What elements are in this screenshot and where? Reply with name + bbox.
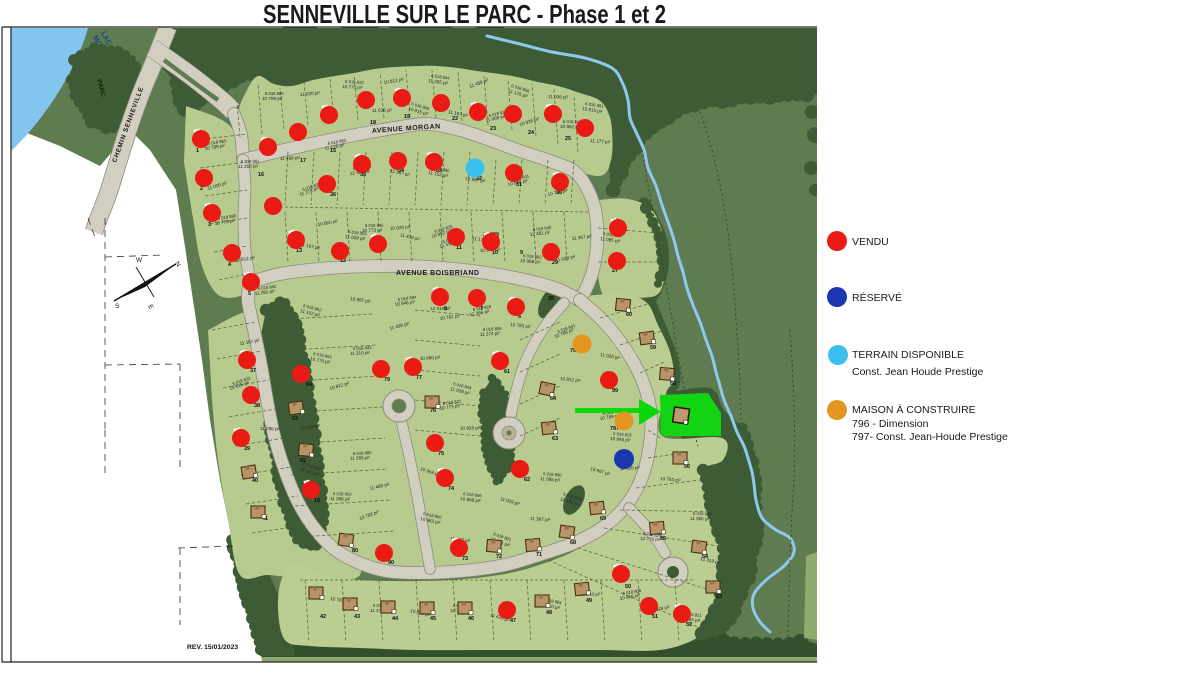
svg-text:6 018 802: 6 018 802 — [333, 491, 352, 497]
svg-text:47: 47 — [510, 618, 516, 624]
svg-text:11 265 pi²: 11 265 pi² — [238, 164, 259, 169]
svg-text:6 018 822: 6 018 822 — [345, 79, 365, 85]
svg-text:5: 5 — [248, 291, 251, 297]
svg-text:24: 24 — [528, 130, 535, 136]
svg-text:RÉSERVÉ: RÉSERVÉ — [852, 291, 902, 304]
svg-text:63: 63 — [552, 436, 558, 442]
svg-text:42: 42 — [320, 614, 326, 620]
svg-text:46: 46 — [468, 616, 474, 622]
svg-text:6 018 843: 6 018 843 — [693, 511, 712, 516]
svg-text:71: 71 — [536, 552, 542, 558]
svg-text:11 036 pi²: 11 036 pi² — [548, 94, 569, 100]
svg-text:58: 58 — [670, 381, 676, 387]
svg-text:45: 45 — [430, 616, 436, 622]
svg-text:39: 39 — [244, 446, 250, 452]
svg-text:19: 19 — [404, 114, 410, 120]
svg-text:6 018 885: 6 018 885 — [353, 450, 373, 456]
svg-text:73: 73 — [462, 556, 468, 562]
svg-text:37: 37 — [250, 368, 256, 374]
svg-text:59: 59 — [650, 345, 656, 351]
svg-text:10 773 pi²: 10 773 pi² — [362, 228, 383, 233]
svg-text:62: 62 — [524, 477, 530, 483]
svg-text:75: 75 — [438, 451, 444, 457]
svg-text:7: 7 — [480, 306, 483, 312]
svg-text:S: S — [115, 303, 120, 310]
svg-text:69: 69 — [600, 516, 606, 522]
svg-text:10: 10 — [492, 250, 498, 256]
svg-text:44: 44 — [392, 616, 399, 622]
svg-text:61: 61 — [504, 369, 510, 375]
svg-text:55: 55 — [660, 536, 666, 542]
svg-text:76: 76 — [430, 408, 436, 414]
svg-text:23: 23 — [490, 126, 496, 132]
svg-text:W: W — [136, 257, 143, 264]
svg-text:Const. Jean Houde Prestige: Const. Jean Houde Prestige — [852, 366, 983, 378]
svg-text:82: 82 — [300, 458, 306, 464]
svg-text:52: 52 — [686, 622, 692, 628]
svg-text:796 - Dimension: 796 - Dimension — [852, 418, 929, 430]
svg-text:E: E — [146, 304, 155, 312]
svg-text:25: 25 — [565, 136, 571, 142]
svg-text:51: 51 — [652, 614, 658, 620]
svg-text:60: 60 — [626, 312, 632, 318]
svg-text:10 789 pi²: 10 789 pi² — [262, 96, 283, 101]
svg-text:54: 54 — [702, 554, 709, 560]
svg-text:99: 99 — [612, 388, 618, 394]
svg-text:SENNEVILLE SUR LE PARC - Phase: SENNEVILLE SUR LE PARC - Phase 1 et 2 — [263, 0, 666, 29]
svg-text:53: 53 — [716, 594, 722, 600]
svg-text:VENDU: VENDU — [852, 236, 889, 248]
svg-text:11 489 pi²: 11 489 pi² — [280, 155, 301, 161]
svg-text:1: 1 — [196, 148, 199, 154]
svg-text:79: 79 — [384, 377, 390, 383]
svg-text:6 018 861: 6 018 861 — [241, 159, 260, 164]
svg-text:797- Const. Jean-Houde Prestig: 797- Const. Jean-Houde Prestige — [852, 431, 1008, 443]
svg-text:N: N — [173, 261, 182, 269]
svg-text:72: 72 — [496, 554, 502, 560]
svg-text:15: 15 — [330, 148, 336, 154]
svg-text:6 018 845: 6 018 845 — [365, 223, 384, 228]
svg-text:84: 84 — [306, 382, 313, 388]
svg-text:6 018 843: 6 018 843 — [353, 345, 373, 351]
svg-text:18: 18 — [314, 498, 320, 504]
svg-text:8: 8 — [444, 306, 447, 312]
svg-text:16: 16 — [258, 172, 264, 178]
svg-text:MAISON À CONSTRUIRE: MAISON À CONSTRUIRE — [852, 403, 976, 416]
svg-text:43: 43 — [354, 614, 360, 620]
svg-text:56: 56 — [684, 464, 690, 470]
svg-text:6 018 800: 6 018 800 — [265, 91, 284, 96]
svg-text:49: 49 — [586, 598, 592, 604]
svg-text:2: 2 — [200, 186, 203, 192]
svg-text:77: 77 — [416, 375, 422, 381]
svg-text:REV. 15/01/2023: REV. 15/01/2023 — [187, 644, 238, 651]
svg-text:63: 63 — [292, 416, 298, 422]
svg-text:50: 50 — [625, 584, 631, 590]
svg-text:74: 74 — [448, 486, 455, 492]
svg-text:12 319 pi²: 12 319 pi² — [430, 306, 451, 311]
svg-text:11 036 pi²: 11 036 pi² — [372, 108, 393, 113]
svg-text:11 366 pi²: 11 366 pi² — [690, 516, 711, 521]
svg-text:68: 68 — [570, 540, 576, 546]
svg-text:38: 38 — [254, 403, 260, 409]
svg-text:36: 36 — [330, 192, 336, 198]
svg-text:11 036 pi²: 11 036 pi² — [260, 426, 281, 431]
svg-text:AVENUE BOISBRIAND: AVENUE BOISBRIAND — [396, 270, 479, 277]
svg-text:17: 17 — [300, 158, 306, 164]
svg-text:9: 9 — [520, 250, 523, 256]
svg-text:80: 80 — [352, 548, 358, 554]
svg-text:TERRAIN DISPONIBLE: TERRAIN DISPONIBLE — [852, 349, 964, 361]
svg-text:10 926 pi²: 10 926 pi² — [460, 425, 481, 431]
svg-text:22: 22 — [452, 116, 458, 122]
svg-text:31: 31 — [516, 182, 522, 188]
svg-text:18: 18 — [370, 120, 376, 126]
svg-text:40: 40 — [252, 478, 258, 484]
svg-text:90: 90 — [388, 560, 394, 566]
svg-text:29: 29 — [552, 260, 558, 266]
svg-text:3: 3 — [208, 222, 211, 228]
svg-text:48: 48 — [546, 610, 552, 616]
svg-text:11 366 pi²: 11 366 pi² — [330, 496, 351, 502]
svg-text:28: 28 — [548, 296, 554, 302]
